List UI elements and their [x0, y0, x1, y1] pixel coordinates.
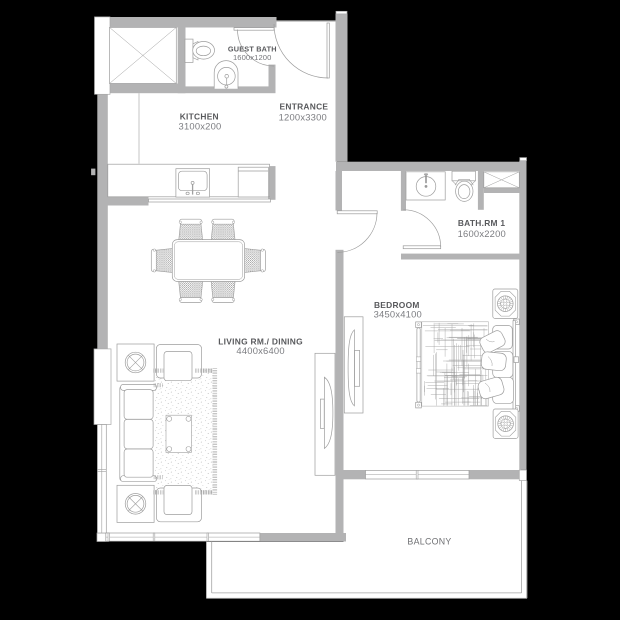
svg-text:BALCONY: BALCONY — [407, 536, 451, 546]
svg-text:BATH.RM 1: BATH.RM 1 — [458, 218, 506, 228]
svg-text:1600x1200: 1600x1200 — [233, 53, 271, 62]
svg-text:1600x2200: 1600x2200 — [458, 228, 506, 239]
svg-text:GUEST BATH: GUEST BATH — [228, 44, 277, 53]
svg-text:3100x200: 3100x200 — [179, 121, 222, 132]
svg-text:ENTRANCE: ENTRANCE — [280, 102, 329, 112]
svg-text:3450x4100: 3450x4100 — [374, 309, 422, 320]
svg-text:1200x3300: 1200x3300 — [279, 111, 327, 122]
svg-text:4400x6400: 4400x6400 — [236, 345, 284, 356]
